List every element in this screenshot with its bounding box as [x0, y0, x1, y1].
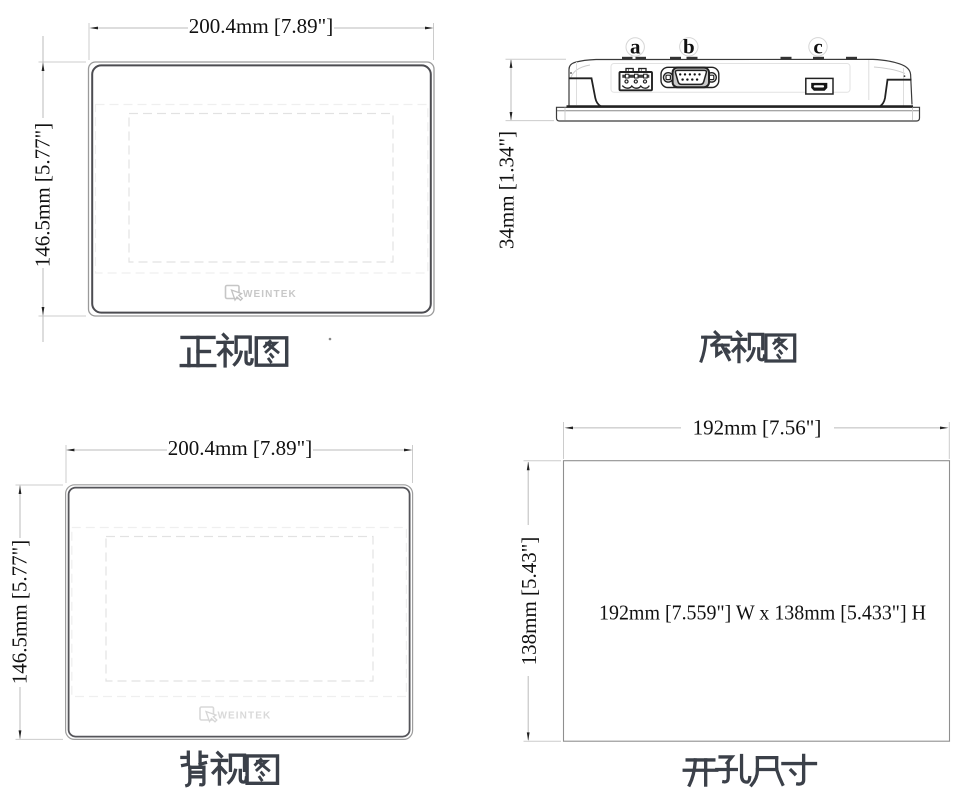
svg-text:192mm [7.56"]: 192mm [7.56"]	[693, 416, 822, 440]
svg-text:146.5mm [5.77"]: 146.5mm [5.77"]	[31, 123, 55, 267]
svg-text:146.5mm [5.77"]: 146.5mm [5.77"]	[8, 540, 32, 684]
svg-text:c: c	[813, 35, 822, 59]
svg-text:200.4mm [7.89"]: 200.4mm [7.89"]	[189, 14, 333, 38]
svg-text:b: b	[683, 35, 695, 59]
svg-text:138mm [5.43"]: 138mm [5.43"]	[517, 537, 541, 666]
svg-text:34mm [1.34"]: 34mm [1.34"]	[495, 131, 519, 249]
svg-text:WEINTEK: WEINTEK	[243, 289, 297, 300]
svg-text:a: a	[630, 35, 641, 59]
svg-text:192mm [7.559"] W x 138mm [5.43: 192mm [7.559"] W x 138mm [5.433"] H	[599, 601, 926, 625]
svg-text:200.4mm [7.89"]: 200.4mm [7.89"]	[168, 436, 312, 460]
svg-text:WEINTEK: WEINTEK	[218, 710, 272, 721]
